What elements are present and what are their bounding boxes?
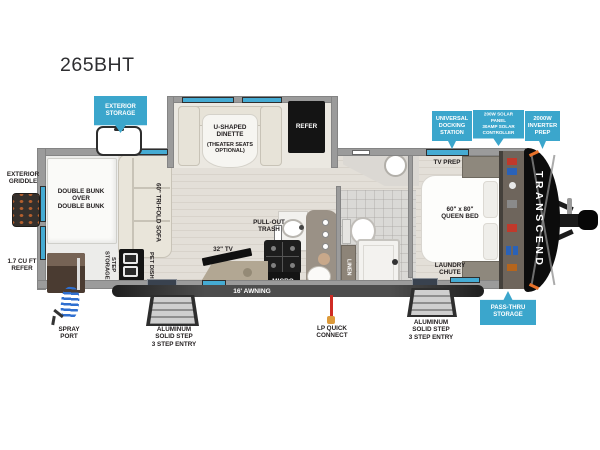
tv32-label: 32" TV <box>201 246 245 253</box>
storage-item <box>506 246 511 255</box>
window <box>242 97 282 103</box>
pet-dish-bowl <box>123 266 138 277</box>
vanity-sink <box>384 154 407 177</box>
tv-cabinet-knob <box>243 268 252 277</box>
dinette-bench-left <box>178 106 200 166</box>
storage-item <box>507 200 517 208</box>
faucet-icon <box>299 225 304 230</box>
tv-prep-window <box>426 149 469 156</box>
counter-knob <box>322 231 329 238</box>
callout-inverter: 2000W INVERTER PREP <box>525 111 560 149</box>
storage-item <box>507 158 517 165</box>
bunks-label: DOUBLE BUNK OVER DOUBLE BUNK <box>50 188 112 210</box>
spray-port-label: SPRAY PORT <box>52 326 86 341</box>
spray-nozzle-icon <box>51 316 56 325</box>
queen-bed-label: 60" x 80" QUEEN BED <box>424 206 496 221</box>
roof-vent <box>352 150 370 155</box>
lp-quick-connect-icon <box>330 295 333 318</box>
step-front-label: ALUMINUM SOLID STEP 3 STEP ENTRY <box>402 319 460 341</box>
linen-label: LINEN <box>341 247 356 287</box>
counter-knob <box>322 219 329 226</box>
window <box>40 226 46 260</box>
step-storage-label: STEP STORAGE <box>101 245 118 285</box>
griddle-label: EXTERIOR GRIDDLE <box>0 171 46 186</box>
window <box>40 186 46 222</box>
entry-steps-rear-treads <box>150 297 195 324</box>
brand-text: TRANSCEND <box>533 171 545 268</box>
counter-knob <box>322 243 329 250</box>
shower-pan <box>363 245 394 283</box>
callout-solar: 200W SOLAR PANEL 30AMP SOLAR CONTROLLER <box>473 110 524 146</box>
counter-bowl <box>318 253 330 265</box>
burner-icon <box>290 246 295 251</box>
window <box>450 277 480 283</box>
dinette-table <box>202 114 258 168</box>
sofa-back-line <box>132 158 134 254</box>
shower-faucet-icon <box>392 259 398 265</box>
bath-wall-right <box>408 150 413 278</box>
storage-item <box>507 224 517 232</box>
storage-item <box>513 246 518 255</box>
sofa-label: 60" TRI-FOLD SOFA <box>148 166 166 258</box>
exterior-griddle-icon <box>12 193 40 227</box>
dinette-sub-label: (THEATER SEATS OPTIONAL) <box>199 142 261 155</box>
mini-fridge-handle <box>77 258 80 290</box>
pillow <box>483 223 498 260</box>
burner-icon <box>290 263 295 268</box>
slide-out-wall-right <box>331 96 338 168</box>
refer-label: REFER <box>296 123 317 130</box>
page-title: 265BHT <box>60 54 135 77</box>
stove-grid-line <box>266 256 299 257</box>
mini-refer-label: 1.7 CU FT REFER <box>0 258 44 273</box>
hitch-coupler <box>578 210 598 230</box>
lp-quick-connect-tip <box>327 316 335 324</box>
tv-prep-label: TV PREP <box>424 159 470 166</box>
stove-grid-line <box>282 242 283 272</box>
entry-steps-front-treads <box>411 290 453 315</box>
refrigerator: REFER <box>288 101 325 153</box>
slide-out-wall-left <box>167 96 174 168</box>
window <box>182 97 234 103</box>
lp-connect-label: LP QUICK CONNECT <box>308 325 356 340</box>
pet-dish-label: PET DISH <box>145 246 157 284</box>
dinette-bench-right <box>260 106 282 166</box>
callout-universal-docking: UNIVERSAL DOCKING STATION <box>432 111 472 149</box>
step-rear-label: ALUMINUM SOLID STEP 3 STEP ENTRY <box>145 326 203 348</box>
storage-item <box>507 264 517 271</box>
callout-pass-thru: PASS-THRU STORAGE <box>480 291 536 325</box>
pet-dish-bowl <box>123 253 138 264</box>
awning-label: 16' AWNING <box>228 288 276 296</box>
storage-item <box>507 168 517 175</box>
floorplan-canvas: 265BHT MICRO <box>0 0 600 450</box>
brand-logo: TRANSCEND <box>527 152 551 288</box>
burner-icon <box>271 246 276 251</box>
dinette-title-label: U-SHAPED DINETTE <box>202 124 258 139</box>
storage-item <box>509 182 516 189</box>
trash-label: PULL-OUT TRASH <box>246 219 292 234</box>
burner-icon <box>271 263 276 268</box>
laundry-label: LAUNDRY CHUTE <box>430 262 470 277</box>
